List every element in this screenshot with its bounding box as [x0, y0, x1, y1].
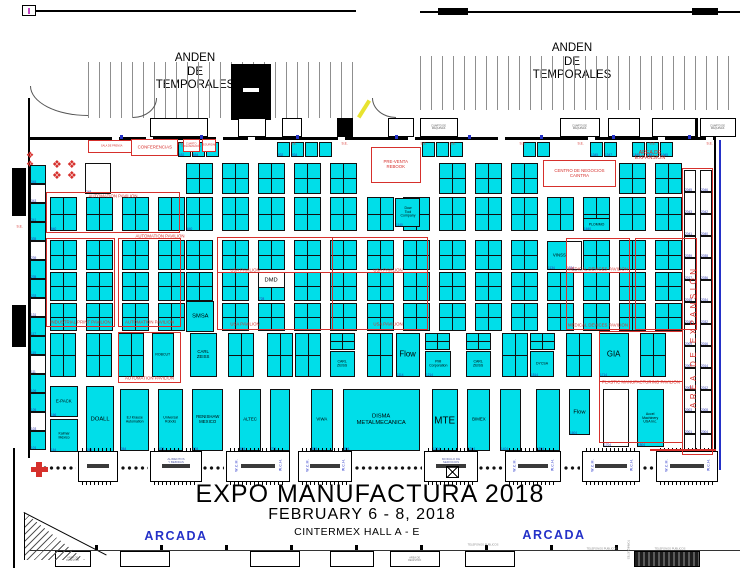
expansion-cell: 2032 — [700, 302, 712, 324]
booth-label: DOALL — [91, 416, 110, 422]
booth-cluster — [436, 142, 449, 157]
curb-arc-3 — [372, 98, 396, 118]
booth-number: 1514 — [531, 374, 538, 377]
booth-cluster — [158, 303, 185, 331]
booth-cluster — [294, 197, 321, 231]
wcm-label: W.C.M. — [591, 459, 594, 471]
booth-label: PLOMMO — [589, 223, 605, 227]
booth-label: DMD — [265, 277, 278, 283]
red-line — [650, 449, 716, 451]
entrance-module: W.C.M.W.C.H. — [656, 451, 718, 482]
booth: Flow1114 — [396, 333, 420, 377]
left-cell: 103 — [30, 412, 46, 431]
booth-number: 1345 — [591, 154, 598, 157]
booth-cluster — [511, 303, 538, 331]
booth: CARL ZEISS — [330, 351, 355, 377]
left-cell: 343 — [30, 184, 46, 203]
left-cell: 115 — [30, 336, 46, 355]
booth-cluster — [330, 272, 357, 301]
booth-label: PMI Corporation — [429, 360, 447, 368]
booth-cluster — [367, 240, 394, 270]
booth: RENISHAW MEXICO504 — [192, 389, 223, 451]
booth-cluster — [655, 272, 682, 301]
left-cell: 131 — [30, 298, 46, 317]
booth-label: CUARTO ORGANIZACIÓN — [182, 143, 201, 148]
pavilion-floating-label: USA PAVILION — [373, 322, 402, 326]
booth-number: 1804 — [638, 444, 645, 447]
seguridad: SEGURIDAD — [202, 139, 216, 152]
booth-cluster: 1347 — [604, 142, 617, 157]
registration-box — [250, 551, 300, 567]
expansion-cell: 2042 — [700, 192, 712, 214]
booth-label: SMSA — [192, 313, 208, 319]
booth-cluster — [425, 333, 450, 350]
booth-cluster — [50, 333, 76, 377]
booth-label: Flow — [573, 409, 585, 415]
booth-cluster — [511, 272, 538, 301]
booth-cluster — [122, 303, 149, 331]
booth-cluster — [537, 142, 550, 157]
wall-tick — [612, 135, 615, 139]
pre-venta-rebook: PRE-VENTA REBOOK — [371, 147, 421, 183]
area-expansion-side-label: AREA DE EXPANSIÓN — [689, 228, 698, 408]
se-label: S.E. — [520, 142, 526, 145]
turnstile-chain — [120, 465, 148, 471]
booth-label: VIWA — [317, 418, 328, 423]
dock-stripes-left — [88, 62, 358, 118]
wch-label: W.C.H. — [551, 459, 554, 471]
door-gap — [248, 137, 255, 140]
registration-box — [330, 551, 374, 567]
booth-cluster — [86, 272, 113, 301]
booth-label: CUARTO DE MÁQUINAS — [573, 125, 588, 130]
dock-block — [231, 64, 271, 120]
wall-tick — [688, 135, 691, 139]
wall-tick — [468, 135, 471, 139]
registration-box — [465, 551, 515, 567]
area-expansion-top-label: AREA DE EXPANSIÓN — [635, 150, 665, 161]
booth: EJ Krause Automation364 — [120, 389, 149, 451]
booth-cluster — [228, 333, 254, 377]
first-aid-cross-icon — [31, 462, 48, 477]
booth-cluster — [583, 272, 610, 301]
outer-left-wall — [13, 448, 15, 568]
se-label: S.E. — [421, 142, 427, 145]
booth-cluster — [655, 163, 682, 194]
booth: CARL ZEISS — [190, 333, 217, 377]
booth-cluster — [466, 333, 491, 350]
booth: ROBCUT — [152, 333, 174, 377]
service-room — [238, 118, 266, 137]
booth-cluster — [403, 272, 430, 301]
booth-cluster — [294, 240, 321, 270]
booth-cluster — [258, 240, 285, 270]
wcm-label: W.C.M. — [514, 459, 517, 471]
service-room — [388, 118, 414, 137]
booth-number: 1114 — [397, 374, 404, 377]
wall-tick — [120, 135, 123, 139]
phone-label: TELEFONOS PUBLICOS — [468, 544, 499, 547]
door-gap — [588, 137, 595, 140]
booth-label: CARL ZEISS — [197, 350, 210, 359]
booth: 248 — [85, 163, 111, 194]
booth-cluster — [267, 333, 293, 377]
booth-number: 540 — [51, 228, 56, 231]
booth-label: DYCSA — [536, 362, 548, 366]
wall-tick — [296, 135, 299, 139]
booth-cluster: 1345 — [590, 142, 603, 157]
booth-number: 640 — [187, 228, 192, 231]
module-equipment — [595, 464, 626, 468]
expansion-cell: 2012 — [700, 368, 712, 390]
booth-cluster — [50, 303, 77, 331]
conferencias: CONFERENCIAS — [131, 139, 178, 156]
left-riser-2 — [12, 305, 26, 347]
booth-cluster — [547, 197, 574, 231]
left-cell: 117 — [30, 317, 46, 336]
booth: Kalmar México164 — [50, 419, 78, 452]
module-equipment — [241, 464, 276, 468]
booth-cluster — [367, 303, 394, 331]
left-cell: 109 — [30, 374, 46, 393]
booth-cluster — [222, 240, 249, 270]
booth-number: 1347 — [605, 154, 612, 157]
booth-cluster — [511, 240, 538, 270]
expansion-cell: 2043 — [684, 192, 696, 214]
booth-number: 1604 — [570, 432, 577, 435]
booth-cluster — [547, 303, 574, 331]
entrance-module: ALIMENTOS Y BEBIDAS — [150, 451, 202, 482]
booth-label: CUARTO DE MÁQUINAS — [711, 125, 726, 130]
se-label: S.E. — [707, 142, 713, 145]
booth-cluster — [294, 303, 321, 331]
turnstile-chain — [563, 465, 580, 471]
expansion-cell: 2036 — [700, 258, 712, 280]
booth-cluster — [330, 303, 357, 331]
module-equipment — [670, 464, 704, 468]
top-left-box — [22, 5, 36, 16]
cuarto-organizacion: CUARTO ORGANIZACIÓN — [183, 139, 200, 152]
left-cell: 341 — [30, 203, 46, 222]
booth-number: 364 — [121, 448, 126, 451]
booth-cluster — [619, 272, 646, 301]
booth-cluster — [502, 333, 528, 377]
registration-box: AREA DE REGISTRO — [390, 551, 440, 567]
booth-label: Accel Machinery USA Inc. — [642, 412, 658, 423]
booth-number: 1704 — [604, 444, 611, 447]
door-gap — [658, 137, 665, 140]
service-room: CUARTO DE MÁQUINAS — [420, 118, 458, 137]
booth-label: GIA — [607, 351, 620, 359]
booth-number: 166 — [51, 414, 56, 417]
booth-number: 1140 — [396, 224, 403, 227]
left-cell: 239 — [30, 241, 46, 260]
booth-cluster — [475, 197, 502, 231]
booth-cluster — [86, 333, 112, 377]
module-equipment — [518, 464, 548, 468]
booth: 1504 — [536, 389, 560, 451]
booth-label: Universal Robots — [163, 416, 178, 424]
door-gap — [408, 137, 415, 140]
se-label: S.E. — [450, 142, 456, 145]
wch-label: W.C.H. — [630, 459, 633, 471]
wch-label: W.C.H. — [708, 459, 711, 471]
booth: 1534 — [566, 241, 582, 270]
left-cell: 235 — [30, 260, 46, 279]
booth-cluster — [619, 240, 646, 270]
booth: Universal Robots404 — [158, 389, 183, 451]
booth-cluster — [330, 333, 355, 350]
booth: 1404 — [500, 389, 521, 451]
booth-cluster — [294, 163, 321, 194]
centro-de-negocios-caintra: CENTRO DE NEGOCIOS CAINTRA — [543, 160, 616, 187]
booth: PMI Corporation1214 — [425, 351, 451, 377]
wall-block-1 — [337, 118, 353, 137]
left-cell: 111 — [30, 355, 46, 374]
service-room: CUARTO DE MÁQUINAS — [560, 118, 600, 137]
bottom-dark-block — [634, 551, 700, 567]
wch-label: W.C.H. — [279, 459, 282, 471]
booth-cluster — [222, 197, 249, 231]
booth-cluster — [118, 333, 144, 377]
entrance-module — [78, 451, 118, 482]
event-title: EXPO MANUFACTURA 2018 — [196, 480, 545, 509]
booth: Dow Tool Company1140 — [395, 198, 420, 227]
booth-label: CENTRO DE NEGOCIOS CAINTRA — [554, 169, 604, 178]
door-gap — [338, 137, 345, 140]
arcada-label-left: ARCADA — [144, 529, 207, 543]
event-dates: FEBRUARY 6 - 8, 2018 — [268, 506, 456, 524]
door-gap — [706, 137, 713, 140]
booth-cluster: 540 — [50, 197, 77, 231]
booth: Accel Machinery USA Inc.1804 — [637, 389, 664, 447]
booth-label: DISMA METALMECANICA — [357, 414, 406, 426]
expansion-cell: 2001 — [684, 412, 696, 434]
expansion-cell: 2038 — [700, 236, 712, 258]
booth-cluster — [319, 142, 332, 157]
expansion-cell: 2046 — [700, 170, 712, 192]
turnstile-chain — [202, 465, 224, 471]
booth-cluster — [439, 163, 466, 194]
booth-number: 1214 — [426, 374, 433, 377]
booth-label: CUARTO DE MÁQUINAS — [432, 125, 447, 130]
expansion-blue-line — [719, 140, 721, 470]
event-venue: CINTERMEX HALL A - E — [294, 526, 420, 538]
booth: Flow1604 — [569, 389, 590, 435]
booth: MTE1204 — [432, 389, 458, 451]
wcm-label: W.C.M. — [236, 459, 239, 471]
booth-cluster — [222, 272, 249, 301]
expansion-cell: 2004 — [700, 412, 712, 434]
door-gap — [216, 137, 223, 140]
module-equipment — [87, 464, 108, 468]
booth-label: ROBCUT — [156, 353, 171, 357]
module-equipment — [162, 464, 190, 468]
booth-label: CARL ZEISS — [473, 360, 483, 368]
booth: PLOMMO1640 — [583, 218, 610, 231]
booth-cluster — [439, 272, 466, 301]
booth-cluster — [475, 163, 502, 194]
booth-number: 1134 — [548, 267, 555, 270]
booth-cluster: 932 — [277, 142, 290, 157]
booth-number: 654 — [193, 154, 198, 157]
booth-number: 932 — [278, 154, 283, 157]
booth-cluster — [511, 197, 538, 231]
booth-cluster — [439, 240, 466, 270]
curb-arc-1 — [30, 86, 88, 116]
booth-cluster — [122, 197, 149, 231]
booth-cluster — [619, 197, 646, 231]
booth-cluster — [222, 163, 249, 194]
booth-label: SALA DE PRENSA — [101, 145, 123, 148]
turnstile-chain — [354, 465, 422, 471]
booth-cluster — [547, 272, 574, 301]
booth-cluster — [258, 197, 285, 231]
top-left-box-mark — [28, 8, 30, 14]
booth-number: 728 — [259, 298, 264, 301]
red-line — [566, 272, 630, 273]
booth: BIMEX1304 — [467, 389, 490, 451]
booth-label: EJ Krause Automation — [126, 416, 144, 424]
booth-cluster — [186, 272, 213, 301]
booth: 704 — [270, 389, 290, 451]
se-label: S.E. — [578, 142, 584, 145]
booth-cluster — [655, 303, 682, 331]
meeting-tables-icon: ❖ ❖ ❖ ❖ — [52, 160, 78, 182]
expo-floor-plan: ANDEN DE TEMPORALES ANDEN DE TEMPORALES … — [0, 0, 744, 568]
expansion-cell: 2034 — [700, 280, 712, 302]
booth-cluster — [583, 240, 610, 270]
booth-cluster — [330, 163, 357, 194]
booth-cluster — [122, 240, 149, 270]
se-label: S.E. — [291, 142, 297, 145]
left-cell: 345 — [30, 165, 46, 184]
booth-label: Dow Tool Company — [400, 207, 415, 218]
booth: SMSA — [186, 301, 214, 332]
se-label: S.E. — [342, 142, 348, 145]
expansion-cell: 2014 — [700, 346, 712, 368]
left-riser-1 — [12, 168, 26, 216]
booth-number: 1714 — [600, 374, 607, 377]
booth-label: AREA DE REGISTRO — [408, 556, 421, 561]
red-line — [217, 272, 428, 273]
top-line-left — [36, 10, 356, 12]
booth-label: Kalmar México — [58, 432, 69, 440]
booth-label: CARL ZEISS — [337, 360, 347, 368]
booth-cluster — [158, 272, 185, 301]
top-bar-1 — [438, 8, 468, 15]
booth-label: CONFERENCIAS — [137, 145, 171, 150]
booth-cluster — [619, 163, 646, 194]
booth-label: BIMEX — [472, 418, 486, 423]
booth-number: 652 — [179, 154, 184, 157]
service-room: CUARTO DE MÁQUINAS — [700, 118, 736, 137]
registration-box — [120, 551, 170, 567]
module-equipment — [310, 464, 339, 468]
hall-right-wall — [714, 137, 716, 455]
booth-cluster — [619, 303, 646, 331]
top-bar-2 — [692, 8, 718, 15]
booth-number: 248 — [86, 191, 91, 194]
booth-cluster — [367, 197, 394, 231]
booth-cluster — [583, 303, 610, 331]
wch-label: W.C.H. — [342, 459, 345, 471]
booth-cluster — [566, 333, 592, 377]
module-label: ALIMENTOS Y BEBIDAS — [154, 458, 199, 464]
service-room — [282, 118, 302, 137]
pavilion-floating-label: AUTOMATION PAVILION — [135, 234, 184, 238]
booth-cluster — [475, 272, 502, 301]
booth-cluster — [403, 240, 430, 270]
booth-cluster — [294, 272, 321, 301]
hazard-mark-icon — [357, 99, 371, 118]
wcm-label: W.C.M. — [307, 459, 310, 471]
module-label: MODULO DE SERVICIOS — [428, 458, 474, 464]
booth-number: 101 — [31, 447, 36, 450]
booth: VIWA804 — [311, 389, 333, 451]
booth-cluster — [655, 197, 682, 231]
booth-cluster — [403, 303, 430, 331]
booth-cluster — [158, 240, 185, 270]
booth-cluster — [186, 163, 213, 194]
booth-cluster — [158, 197, 185, 231]
entrance-module: W.C.M.W.C.H. — [226, 451, 290, 482]
booth-number: 1640 — [584, 228, 591, 231]
left-cell: 101 — [30, 431, 46, 450]
left-cell: 233 — [30, 279, 46, 298]
booth-cluster — [295, 333, 321, 377]
booth-cluster — [86, 303, 113, 331]
wall-tick — [540, 135, 543, 139]
booth-label: E-PACK — [56, 399, 72, 404]
booth-cluster — [186, 240, 213, 270]
booth-number: 934 — [292, 154, 297, 157]
arcada-label-right: ARCADA — [522, 528, 585, 542]
booth-cluster — [86, 197, 113, 231]
booth-label: PRE-VENTA REBOOK — [384, 160, 409, 169]
expansion-cell: 2008 — [700, 390, 712, 412]
door-gap — [498, 137, 505, 140]
entrance-module: W.C.M.W.C.H. — [505, 451, 561, 482]
red-line — [599, 381, 683, 382]
booth-cluster — [305, 142, 318, 157]
booth: E-PACK166 — [50, 386, 78, 417]
booth-cluster — [640, 333, 666, 377]
booth-cluster — [122, 272, 149, 301]
booth-cluster — [367, 333, 393, 377]
left-cell: 105 — [30, 393, 46, 412]
booth-cluster — [367, 272, 394, 301]
turnstile-chain — [478, 465, 503, 471]
booth-label: RENISHAW MEXICO — [196, 415, 219, 424]
booth: DMD — [258, 272, 285, 288]
booth-cluster — [258, 303, 285, 331]
booth: GIA1714 — [599, 333, 629, 377]
booth-cluster: 640 — [186, 197, 213, 231]
booth-number: 164 — [51, 449, 56, 452]
booth-cluster — [330, 197, 357, 231]
entrance-module: W.C.M.W.C.H. — [298, 451, 352, 482]
wall-tick — [395, 135, 398, 139]
booth: DOALL264 — [86, 386, 114, 452]
booth-cluster — [86, 240, 113, 270]
booth-cluster — [50, 272, 77, 301]
dock-block-dash — [243, 88, 259, 92]
booth-cluster — [439, 197, 466, 231]
booth-label: Flow — [400, 351, 416, 359]
booth-label: ALTEC — [243, 418, 257, 423]
booth-cluster — [475, 303, 502, 331]
